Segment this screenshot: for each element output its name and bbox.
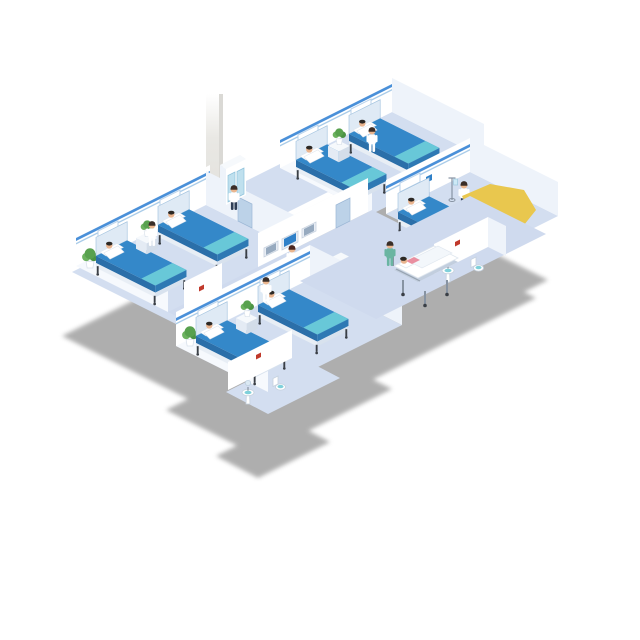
hospital-ward-illustration: 护士站: [0, 0, 640, 640]
cabinet-glass-door: [237, 168, 244, 198]
illustration-canvas: 护士站: [0, 0, 640, 640]
